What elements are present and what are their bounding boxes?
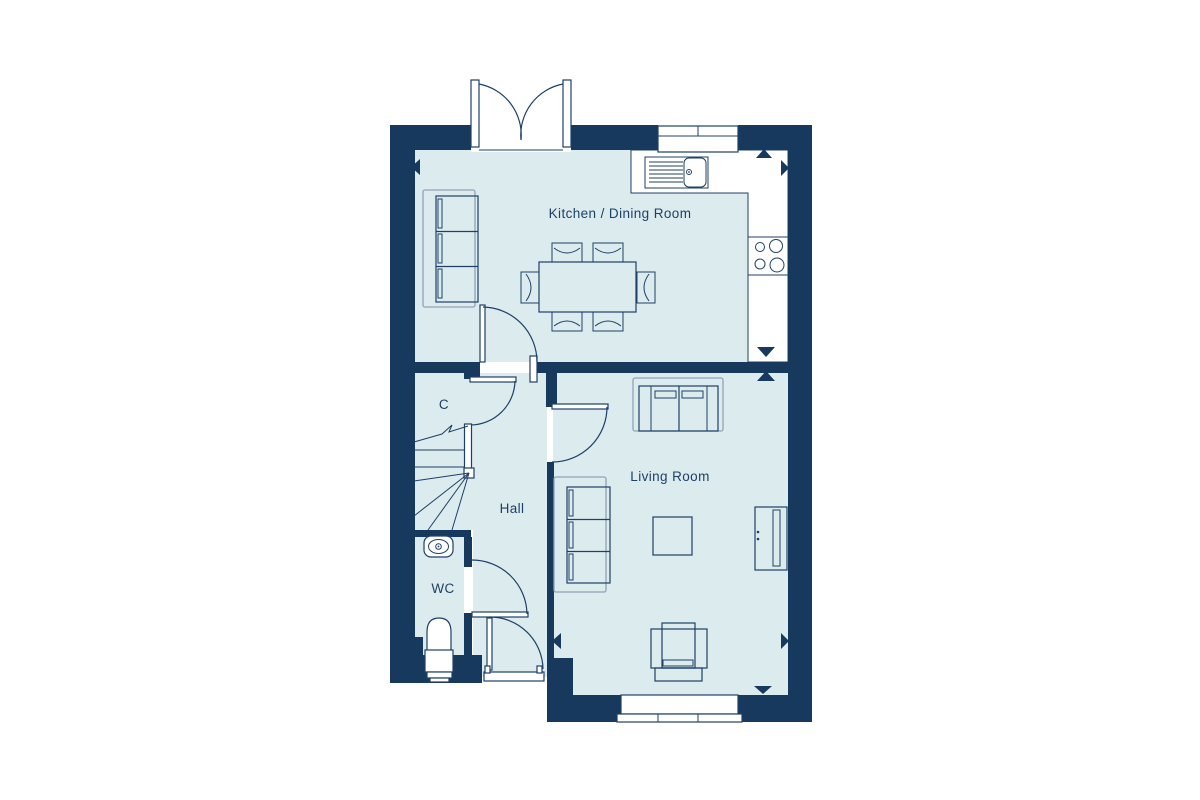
cupboard-door-leaf [470, 377, 516, 382]
wall-top-right [738, 125, 812, 150]
front-door-sill [484, 672, 544, 681]
hall-floor-lower [473, 530, 547, 677]
wc-label: WC [431, 581, 454, 596]
sink-unit [645, 157, 708, 188]
front-door-leaf [487, 618, 492, 670]
kitchen-window [658, 126, 738, 152]
living-door-leaf [552, 404, 608, 409]
wall-divider-right [533, 362, 788, 373]
wall-living-west-stub [546, 372, 557, 407]
hob [748, 237, 788, 275]
wall-left [390, 150, 415, 657]
wall-wc-east-lower [464, 613, 472, 657]
hall-floor-upper [415, 373, 547, 530]
arrow-down-icon [757, 347, 775, 357]
cupboard-label: C [439, 397, 449, 412]
kitchen-door-leaf [480, 305, 485, 362]
toilet [425, 618, 453, 682]
wall-bottom-living-right [738, 695, 812, 722]
kitchen-dining-label: Kitchen / Dining Room [549, 206, 692, 221]
wc-basin [424, 536, 453, 557]
wall-bottom-living-left [573, 695, 621, 722]
living-window [617, 695, 742, 722]
stair-rail [465, 424, 472, 469]
kitchen-door-jamb [530, 356, 537, 382]
french-door-leaf-right [563, 80, 571, 147]
hall-label: Hall [500, 501, 525, 516]
sink-basin [684, 158, 706, 187]
living-floor [553, 372, 788, 695]
wall-wc-east-upper [464, 537, 472, 567]
wall-divider-left [390, 362, 480, 373]
floor-plan: Kitchen / Dining Room Living Room Hall C… [0, 0, 1200, 800]
floor-plan-canvas: Kitchen / Dining Room Living Room Hall C… [0, 0, 1200, 800]
wall-toilet-niche [390, 637, 423, 657]
wall-living-sw [547, 658, 573, 722]
wall-top-left [390, 125, 471, 150]
living-room-label: Living Room [630, 469, 709, 484]
french-door-leaf-left [471, 80, 479, 147]
wall-living-west [547, 462, 554, 658]
wc-door-leaf [472, 612, 528, 617]
wall-top-mid [571, 125, 658, 150]
wall-right [788, 150, 812, 722]
drainer-lines [649, 162, 683, 182]
